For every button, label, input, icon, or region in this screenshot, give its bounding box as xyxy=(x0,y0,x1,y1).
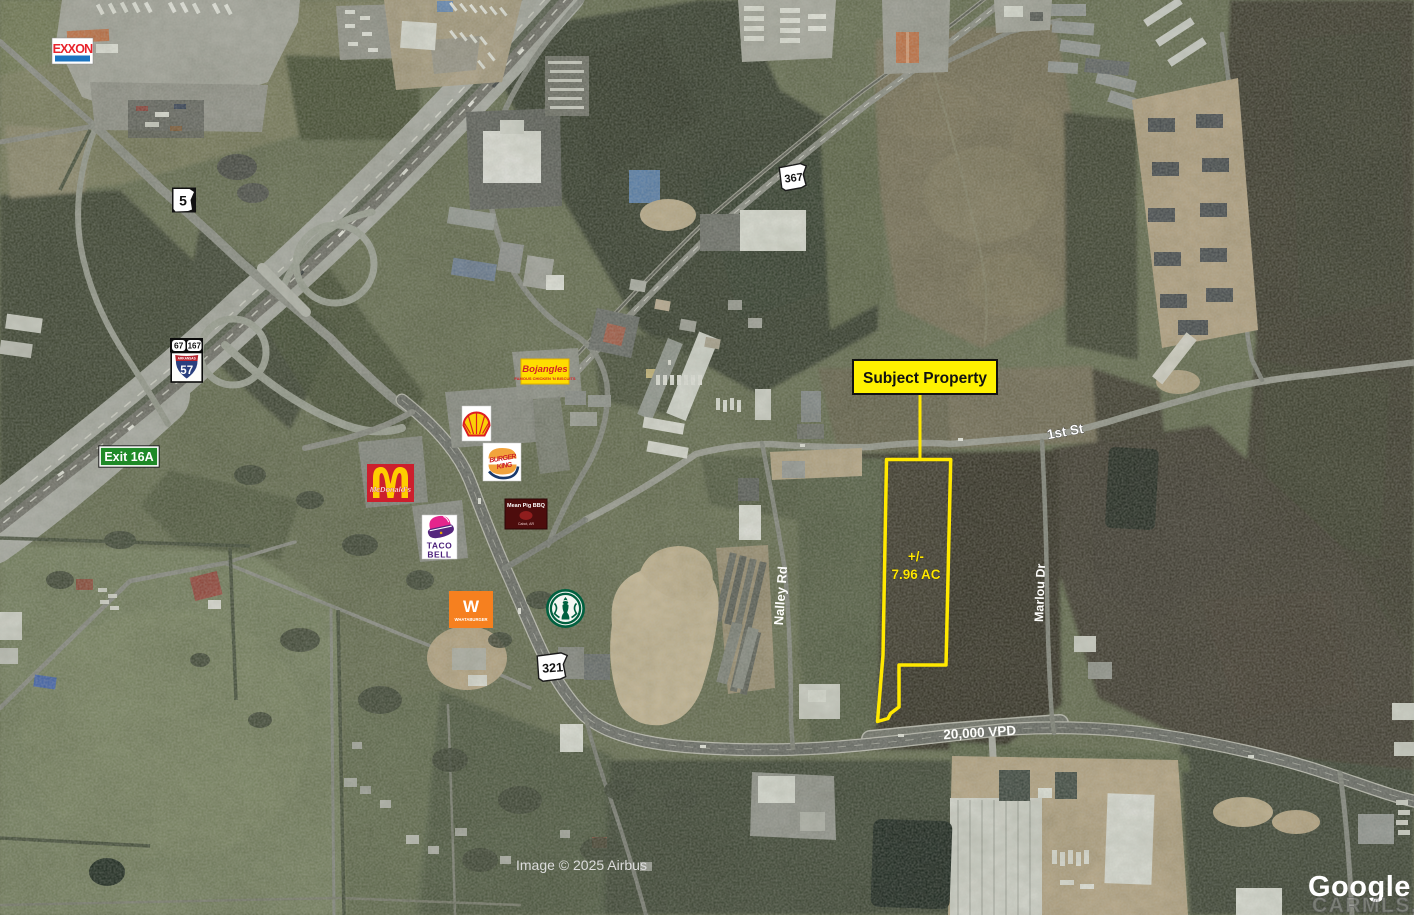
svg-text:W: W xyxy=(463,597,480,616)
svg-text:ARKANSAS: ARKANSAS xyxy=(178,357,196,361)
svg-text:Mean Pig BBQ: Mean Pig BBQ xyxy=(507,503,546,509)
svg-text:Subject Property: Subject Property xyxy=(863,370,987,387)
svg-text:Marlou Dr: Marlou Dr xyxy=(1032,563,1048,622)
svg-text:Bojangles: Bojangles xyxy=(522,364,567,375)
svg-text:5: 5 xyxy=(179,193,187,209)
svg-text:Image © 2025 Airbus: Image © 2025 Airbus xyxy=(516,857,647,873)
svg-text:167: 167 xyxy=(188,342,202,351)
svg-text:+/-: +/- xyxy=(908,549,924,564)
svg-text:57: 57 xyxy=(180,365,193,377)
svg-text:7.96 AC: 7.96 AC xyxy=(891,567,940,582)
svg-text:321: 321 xyxy=(542,660,564,675)
svg-text:CARMLS, INC: CARMLS, INC xyxy=(1312,894,1414,915)
svg-text:EXXON: EXXON xyxy=(53,42,94,56)
svg-text:FAMOUS CHICKEN 'N BISCUITS: FAMOUS CHICKEN 'N BISCUITS xyxy=(514,376,576,381)
svg-text:Exit 16A: Exit 16A xyxy=(104,450,153,464)
svg-text:WHATABURGER: WHATABURGER xyxy=(454,617,487,622)
svg-text:367: 367 xyxy=(784,171,804,185)
svg-text:67: 67 xyxy=(174,341,184,351)
svg-text:BELL: BELL xyxy=(427,550,451,560)
svg-text:McDonald's: McDonald's xyxy=(370,485,411,494)
svg-text:Cabot, AR: Cabot, AR xyxy=(518,522,534,526)
